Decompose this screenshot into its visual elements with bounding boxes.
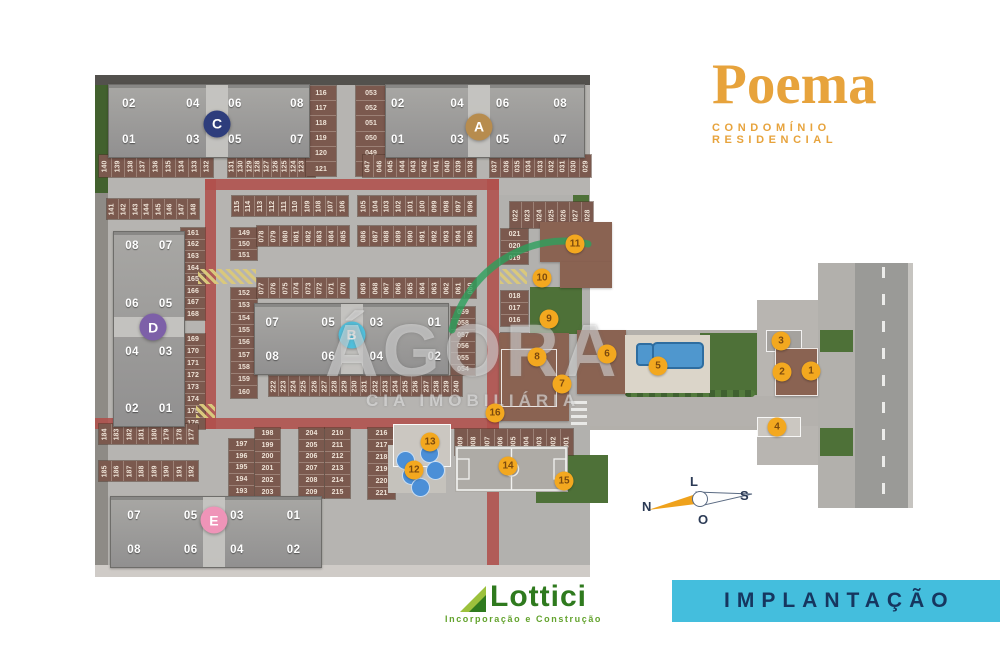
parking-space-202: 202 — [255, 474, 280, 486]
parking-space-061: 061 — [452, 278, 464, 298]
compass-south-label: S — [740, 488, 749, 503]
parking-space-017: 017 — [501, 302, 528, 314]
unit-label-B06: 06 — [321, 351, 335, 363]
plan-title-box: IMPLANTAÇÃO — [672, 580, 1000, 622]
parking-space-139: 139 — [111, 155, 124, 177]
parking-space-076: 076 — [268, 278, 280, 298]
parking-strip: 077076075074073072071070 — [257, 278, 349, 298]
unit-label-B05: 05 — [321, 317, 335, 329]
parking-space-054: 054 — [451, 364, 475, 376]
parking-space-123: 123 — [297, 155, 306, 177]
parking-space-205: 205 — [299, 439, 324, 451]
parking-space-062: 062 — [440, 278, 452, 298]
parking-space-069: 069 — [358, 278, 369, 298]
building-badge-A: A — [466, 113, 493, 140]
amenity-marker-6: 6 — [598, 345, 617, 364]
parking-space-206: 206 — [299, 451, 324, 463]
parking-strip: 078079080081082083084085 — [257, 226, 349, 246]
unit-label-C08: 08 — [290, 98, 304, 110]
parking-strip: 105104103102101100099098097096 — [358, 196, 476, 216]
parking-strip: 204205206207208209 — [299, 428, 324, 498]
parking-space-124: 124 — [289, 155, 298, 177]
parking-space-146: 146 — [164, 199, 176, 219]
unit-label-D02: 02 — [125, 403, 139, 415]
parking-space-211: 211 — [325, 439, 350, 451]
unit-label-C01: 01 — [122, 134, 136, 146]
crosswalk-white — [571, 399, 587, 425]
parking-space-201: 201 — [255, 462, 280, 474]
building-badge-E: E — [200, 507, 227, 534]
amenity-marker-15: 15 — [555, 472, 574, 491]
unit-label-D05: 05 — [159, 298, 173, 310]
parking-space-133: 133 — [188, 155, 201, 177]
parking-strip: 184183182181180179178177 — [99, 424, 198, 444]
parking-space-072: 072 — [314, 278, 326, 298]
parking-space-138: 138 — [124, 155, 137, 177]
parking-space-020: 020 — [501, 240, 528, 252]
parking-space-058: 058 — [451, 318, 475, 330]
unit-label-E08: 08 — [127, 544, 141, 556]
parking-space-182: 182 — [123, 424, 136, 444]
parking-space-092: 092 — [428, 226, 440, 246]
parking-space-047: 047 — [363, 155, 373, 177]
parking-space-184: 184 — [99, 424, 111, 444]
amenity-marker-9: 9 — [540, 310, 559, 329]
brand-subtitle: CONDOMÍNIO RESIDENCIAL — [712, 122, 932, 146]
parking-space-178: 178 — [173, 424, 186, 444]
parking-space-098: 098 — [440, 196, 452, 216]
amenity-marker-4: 4 — [768, 418, 787, 437]
unit-label-C05: 05 — [228, 134, 242, 146]
parking-space-016: 016 — [501, 314, 528, 326]
parking-space-126: 126 — [271, 155, 280, 177]
parking-space-207: 207 — [299, 462, 324, 474]
parking-space-056: 056 — [451, 341, 475, 353]
unit-label-E07: 07 — [127, 510, 141, 522]
parking-space-099: 099 — [428, 196, 440, 216]
parking-space-160: 160 — [231, 385, 257, 397]
parking-space-084: 084 — [326, 226, 338, 246]
parking-space-223: 223 — [278, 376, 288, 396]
amenity-marker-12: 12 — [405, 461, 424, 480]
amenity-marker-11: 11 — [566, 235, 585, 254]
parking-space-075: 075 — [279, 278, 291, 298]
parking-space-067: 067 — [381, 278, 393, 298]
parking-space-078: 078 — [257, 226, 268, 246]
parking-space-215: 215 — [325, 486, 350, 498]
parking-space-043: 043 — [408, 155, 419, 177]
amenity-marker-10: 10 — [533, 269, 552, 288]
unit-label-D07: 07 — [159, 240, 173, 252]
parking-space-181: 181 — [136, 424, 149, 444]
unit-label-A06: 06 — [496, 98, 510, 110]
parking-space-085: 085 — [337, 226, 349, 246]
parking-space-228: 228 — [329, 376, 339, 396]
crosswalk-yellow-1 — [198, 269, 256, 284]
amenity-marker-1: 1 — [802, 362, 821, 381]
parking-space-077: 077 — [257, 278, 268, 298]
unit-label-D08: 08 — [125, 240, 139, 252]
parking-space-198: 198 — [255, 428, 280, 439]
unit-label-E04: 04 — [230, 544, 244, 556]
amenity-marker-13: 13 — [421, 433, 440, 452]
parking-space-232: 232 — [370, 376, 380, 396]
unit-label-E06: 06 — [184, 544, 198, 556]
parking-strip: 210211212213214215 — [325, 428, 350, 498]
parking-space-141: 141 — [107, 199, 118, 219]
parking-space-118: 118 — [306, 115, 336, 130]
parking-space-055: 055 — [451, 352, 475, 364]
parking-space-239: 239 — [441, 376, 451, 396]
unit-label-C03: 03 — [186, 134, 200, 146]
parking-space-231: 231 — [360, 376, 370, 396]
parking-space-063: 063 — [428, 278, 440, 298]
parking-strip: 086087088089090091092093094095 — [358, 226, 476, 246]
parking-space-127: 127 — [262, 155, 271, 177]
parking-space-059: 059 — [451, 307, 475, 318]
parking-space-022: 022 — [510, 202, 521, 228]
developer-tagline: Incorporação e Construção — [445, 614, 602, 624]
unit-label-A01: 01 — [391, 134, 405, 146]
parking-space-035: 035 — [512, 155, 523, 177]
parking-space-040: 040 — [442, 155, 453, 177]
parking-space-224: 224 — [288, 376, 298, 396]
parking-strip: 197196195194193 — [229, 439, 254, 497]
compass-needle-icon — [634, 466, 784, 532]
parking-space-046: 046 — [373, 155, 384, 177]
brand-logo: Poema CONDOMÍNIO RESIDENCIAL — [712, 56, 932, 146]
unit-label-B01: 01 — [428, 317, 442, 329]
parking-space-103: 103 — [381, 196, 393, 216]
parking-strip: 140139138137136135134133132 — [99, 155, 213, 177]
parking-space-115: 115 — [232, 196, 243, 216]
parking-space-091: 091 — [416, 226, 428, 246]
parking-space-090: 090 — [405, 226, 417, 246]
crosswalk-yellow-3 — [196, 404, 215, 418]
parking-space-137: 137 — [136, 155, 149, 177]
parking-space-073: 073 — [302, 278, 314, 298]
parking-strip: 021020019 — [501, 229, 528, 264]
parking-space-240: 240 — [451, 376, 461, 396]
parking-space-135: 135 — [162, 155, 175, 177]
parking-space-096: 096 — [464, 196, 476, 216]
parking-space-196: 196 — [229, 450, 254, 462]
unit-label-B08: 08 — [265, 351, 279, 363]
parking-space-125: 125 — [280, 155, 289, 177]
building-E: 0705030108060402E — [110, 496, 322, 568]
parking-space-082: 082 — [302, 226, 314, 246]
parking-space-042: 042 — [419, 155, 430, 177]
parking-space-191: 191 — [173, 461, 186, 481]
parking-space-116: 116 — [306, 86, 336, 100]
parking-space-230: 230 — [350, 376, 360, 396]
parking-space-111: 111 — [278, 196, 290, 216]
parking-space-030: 030 — [568, 155, 579, 177]
parking-space-179: 179 — [161, 424, 174, 444]
parking-space-114: 114 — [243, 196, 255, 216]
parking-space-060: 060 — [464, 278, 476, 298]
parking-space-064: 064 — [416, 278, 428, 298]
parking-space-041: 041 — [430, 155, 441, 177]
parking-space-045: 045 — [385, 155, 396, 177]
parking-space-194: 194 — [229, 473, 254, 485]
parking-space-150: 150 — [231, 238, 257, 249]
parking-space-079: 079 — [268, 226, 280, 246]
parking-space-208: 208 — [299, 474, 324, 486]
parking-space-128: 128 — [253, 155, 262, 177]
parking-strip: 149150151 — [231, 228, 257, 260]
parking-space-102: 102 — [393, 196, 405, 216]
unit-label-A04: 04 — [450, 98, 464, 110]
unit-label-D06: 06 — [125, 298, 139, 310]
parking-space-129: 129 — [245, 155, 254, 177]
developer-logo: Lottici Incorporação e Construção — [445, 582, 602, 624]
parking-space-106: 106 — [336, 196, 348, 216]
parking-space-117: 117 — [306, 100, 336, 115]
building-badge-C: C — [204, 110, 231, 137]
parking-space-130: 130 — [236, 155, 245, 177]
parking-space-057: 057 — [451, 329, 475, 341]
parking-strip: 018017016 — [501, 291, 528, 326]
parking-space-112: 112 — [266, 196, 278, 216]
parking-space-144: 144 — [141, 199, 153, 219]
crosswalk-yellow-2 — [500, 269, 527, 284]
developer-name: Lottici — [490, 582, 587, 612]
unit-label-E03: 03 — [230, 510, 244, 522]
parking-space-212: 212 — [325, 451, 350, 463]
parking-space-210: 210 — [325, 428, 350, 439]
parking-space-038: 038 — [465, 155, 476, 177]
parking-space-021: 021 — [501, 229, 528, 240]
unit-label-C07: 07 — [290, 134, 304, 146]
parking-strip: 069068067066065064063062061060 — [358, 278, 476, 298]
building-badge-B: B — [338, 321, 365, 348]
unit-label-C02: 02 — [122, 98, 136, 110]
parking-space-036: 036 — [500, 155, 511, 177]
parking-space-100: 100 — [416, 196, 428, 216]
parking-space-121: 121 — [306, 161, 336, 176]
amenity-marker-16: 16 — [486, 404, 505, 423]
parking-space-177: 177 — [186, 424, 199, 444]
parking-strip: 059058057056055054 — [451, 307, 475, 375]
parking-space-031: 031 — [557, 155, 568, 177]
parking-space-023: 023 — [521, 202, 533, 228]
parking-space-147: 147 — [176, 199, 188, 219]
plan-title: IMPLANTAÇÃO — [724, 589, 955, 613]
unit-label-B04: 04 — [370, 351, 384, 363]
brand-title: Poema — [712, 56, 932, 113]
parking-space-226: 226 — [309, 376, 319, 396]
parking-space-068: 068 — [369, 278, 381, 298]
parking-space-234: 234 — [390, 376, 400, 396]
compass-north-label: N — [642, 499, 651, 514]
parking-space-087: 087 — [369, 226, 381, 246]
parking-strip: 131130129128127126125124123122 — [228, 155, 315, 177]
parking-space-188: 188 — [136, 461, 149, 481]
parking-space-053: 053 — [356, 86, 386, 100]
parking-space-113: 113 — [254, 196, 266, 216]
parking-space-089: 089 — [393, 226, 405, 246]
parking-space-074: 074 — [291, 278, 303, 298]
compass-rose: N L S O — [634, 466, 784, 532]
parking-space-070: 070 — [337, 278, 349, 298]
parking-space-237: 237 — [421, 376, 431, 396]
unit-label-A03: 03 — [450, 134, 464, 146]
amenity-marker-2: 2 — [773, 363, 792, 382]
parking-space-083: 083 — [314, 226, 326, 246]
parking-space-071: 071 — [326, 278, 338, 298]
parking-space-148: 148 — [187, 199, 199, 219]
unit-label-B07: 07 — [265, 317, 279, 329]
parking-space-109: 109 — [301, 196, 313, 216]
parking-space-019: 019 — [501, 252, 528, 264]
parking-space-105: 105 — [358, 196, 369, 216]
unit-label-B02: 02 — [428, 351, 442, 363]
parking-space-104: 104 — [369, 196, 381, 216]
parking-strip: 115114113112111110109108107106 — [232, 196, 348, 216]
developer-triangle-icon — [460, 586, 486, 612]
parking-space-213: 213 — [325, 462, 350, 474]
parking-space-145: 145 — [152, 199, 164, 219]
parking-space-199: 199 — [255, 439, 280, 451]
parking-space-039: 039 — [453, 155, 464, 177]
parking-space-233: 233 — [380, 376, 390, 396]
parking-space-151: 151 — [231, 249, 257, 260]
parking-strip: 037036035034033032031030029 — [490, 155, 591, 177]
parking-space-186: 186 — [111, 461, 124, 481]
unit-label-B03: 03 — [370, 317, 384, 329]
parking-space-095: 095 — [464, 226, 476, 246]
parking-space-018: 018 — [501, 291, 528, 302]
parking-space-065: 065 — [405, 278, 417, 298]
parking-space-149: 149 — [231, 228, 257, 238]
parking-space-136: 136 — [149, 155, 162, 177]
parking-space-132: 132 — [200, 155, 213, 177]
site-plan-page: 1401391381371361351341331321311301291281… — [0, 0, 1000, 667]
parking-space-238: 238 — [431, 376, 441, 396]
parking-space-051: 051 — [356, 115, 386, 130]
parking-space-216: 216 — [368, 428, 395, 439]
building-D: 0807060504030201D — [113, 231, 185, 427]
unit-label-E02: 02 — [287, 544, 301, 556]
parking-strip: 198199200201202203 — [255, 428, 280, 498]
parking-space-140: 140 — [99, 155, 111, 177]
building-C: 0204060801030507C — [108, 84, 310, 158]
parking-strip: 141142143144145146147148 — [107, 199, 199, 219]
unit-label-A07: 07 — [553, 134, 567, 146]
building-A: 0204060801030507A — [385, 84, 585, 158]
parking-space-037: 037 — [490, 155, 500, 177]
umbrella-icon — [411, 478, 430, 497]
parking-space-107: 107 — [325, 196, 337, 216]
parking-space-033: 033 — [534, 155, 545, 177]
parking-space-152: 152 — [231, 288, 257, 299]
amenity-marker-7: 7 — [553, 375, 572, 394]
parking-space-180: 180 — [148, 424, 161, 444]
parking-space-183: 183 — [111, 424, 124, 444]
compass-west-label: O — [698, 512, 708, 527]
parking-space-189: 189 — [148, 461, 161, 481]
parking-space-029: 029 — [579, 155, 590, 177]
parking-space-134: 134 — [175, 155, 188, 177]
parking-space-142: 142 — [118, 199, 130, 219]
parking-space-236: 236 — [411, 376, 421, 396]
parking-space-195: 195 — [229, 462, 254, 474]
parking-space-044: 044 — [396, 155, 407, 177]
parking-space-222: 222 — [269, 376, 278, 396]
amenity-marker-5: 5 — [649, 357, 668, 376]
parking-space-101: 101 — [405, 196, 417, 216]
unit-label-A08: 08 — [553, 98, 567, 110]
parking-strip: 116117118119120121 — [306, 86, 336, 176]
unit-label-C04: 04 — [186, 98, 200, 110]
parking-space-080: 080 — [279, 226, 291, 246]
unit-label-C06: 06 — [228, 98, 242, 110]
amenity-marker-14: 14 — [499, 457, 518, 476]
parking-space-088: 088 — [381, 226, 393, 246]
building-badge-D: D — [140, 314, 167, 341]
parking-space-093: 093 — [440, 226, 452, 246]
amenity-marker-3: 3 — [772, 332, 791, 351]
parking-space-120: 120 — [306, 146, 336, 161]
parking-space-034: 034 — [523, 155, 534, 177]
unit-label-E05: 05 — [184, 510, 198, 522]
parking-space-094: 094 — [452, 226, 464, 246]
parking-space-052: 052 — [356, 100, 386, 115]
parking-space-119: 119 — [306, 131, 336, 146]
parking-strip: 185186187188189190191192 — [99, 461, 198, 481]
parking-space-200: 200 — [255, 451, 280, 463]
compass-east-label: L — [690, 474, 698, 489]
parking-space-050: 050 — [356, 131, 386, 146]
unit-label-E01: 01 — [287, 510, 301, 522]
parking-space-066: 066 — [393, 278, 405, 298]
parking-space-143: 143 — [129, 199, 141, 219]
parking-space-108: 108 — [313, 196, 325, 216]
unit-label-A02: 02 — [391, 98, 405, 110]
amenity-building-11b — [560, 262, 612, 288]
parking-space-110: 110 — [289, 196, 301, 216]
parking-space-192: 192 — [186, 461, 199, 481]
parking-space-235: 235 — [400, 376, 410, 396]
unit-label-D01: 01 — [159, 403, 173, 415]
unit-label-A05: 05 — [496, 134, 510, 146]
parking-space-214: 214 — [325, 474, 350, 486]
parking-space-032: 032 — [545, 155, 556, 177]
parking-strip: 2222232242252262272282292302312322332342… — [269, 376, 462, 396]
parking-space-225: 225 — [299, 376, 309, 396]
parking-space-197: 197 — [229, 439, 254, 450]
parking-space-131: 131 — [228, 155, 236, 177]
parking-space-187: 187 — [123, 461, 136, 481]
amenity-marker-8: 8 — [528, 348, 547, 367]
parking-space-229: 229 — [339, 376, 349, 396]
parking-strip: 047046045044043042041040039038 — [363, 155, 476, 177]
unit-label-D03: 03 — [159, 346, 173, 358]
parking-space-097: 097 — [452, 196, 464, 216]
unit-label-D04: 04 — [125, 346, 139, 358]
umbrella-icon — [426, 461, 445, 480]
parking-space-086: 086 — [358, 226, 369, 246]
parking-space-190: 190 — [161, 461, 174, 481]
building-B: 0705030108060402B — [254, 303, 449, 375]
parking-space-081: 081 — [291, 226, 303, 246]
parking-space-227: 227 — [319, 376, 329, 396]
parking-space-185: 185 — [99, 461, 111, 481]
parking-space-204: 204 — [299, 428, 324, 439]
